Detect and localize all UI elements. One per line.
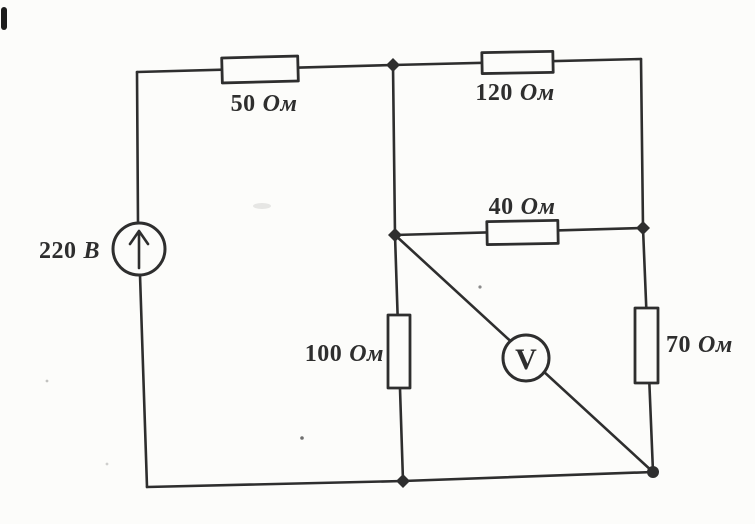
scan-artifact bbox=[478, 285, 481, 288]
voltage-source-value: 220 bbox=[39, 238, 77, 264]
junction-node-top bbox=[386, 58, 400, 72]
wire-middle-vertical bbox=[393, 65, 395, 235]
resistor-r40-unit: Ом bbox=[521, 194, 556, 220]
scan-artifact bbox=[46, 380, 49, 383]
resistor-r120-symbol bbox=[482, 51, 553, 73]
junction-node-bottom-right bbox=[647, 466, 659, 478]
wire-left-lower bbox=[140, 275, 147, 487]
resistor-r50-symbol bbox=[222, 56, 299, 83]
resistor-r100-unit: Ом bbox=[349, 341, 384, 367]
wire-right-upper bbox=[641, 59, 643, 228]
scan-artifact bbox=[300, 436, 304, 440]
resistor-r100-value: 100 bbox=[305, 341, 343, 367]
resistor-r120-label: 120Ом bbox=[475, 80, 554, 106]
resistor-r40-value: 40 bbox=[489, 194, 514, 220]
voltage-source-label: 220В bbox=[39, 238, 100, 264]
scan-artifact bbox=[253, 203, 271, 209]
voltage-source-symbol bbox=[113, 223, 165, 275]
resistor-r100-symbol bbox=[388, 315, 410, 388]
resistor-r50-label: 50Ом bbox=[231, 91, 298, 117]
resistor-r50-unit: Ом bbox=[263, 91, 298, 117]
voltmeter-label: V bbox=[515, 343, 537, 376]
voltmeter-symbol: V bbox=[503, 335, 549, 381]
resistor-r70-value: 70 bbox=[666, 332, 691, 358]
resistor-r70-label: 70Ом bbox=[666, 332, 733, 358]
junction-node-middle-right bbox=[636, 221, 650, 235]
resistor-r120-value: 120 bbox=[475, 80, 513, 106]
voltage-source-unit: В bbox=[82, 238, 100, 264]
scan-artifact bbox=[106, 463, 109, 466]
resistor-r120-unit: Ом bbox=[520, 80, 555, 106]
scanned-circuit-diagram: V 50Ом 120Ом 40Ом 100Ом 70Ом 220В bbox=[0, 0, 755, 524]
junction-node-bottom-middle bbox=[396, 474, 410, 488]
resistor-r70-unit: Ом bbox=[698, 332, 733, 358]
resistor-r40-symbol bbox=[487, 220, 558, 244]
resistor-r40-label: 40Ом bbox=[489, 194, 556, 220]
wire-left-upper bbox=[137, 72, 138, 223]
resistor-r50-value: 50 bbox=[231, 91, 256, 117]
scan-artifact bbox=[1, 7, 7, 30]
resistor-r100-label: 100Ом bbox=[305, 341, 384, 367]
resistor-r70-symbol bbox=[635, 308, 658, 383]
circuit-diagram: V 50Ом 120Ом 40Ом 100Ом 70Ом 220В bbox=[0, 0, 755, 524]
